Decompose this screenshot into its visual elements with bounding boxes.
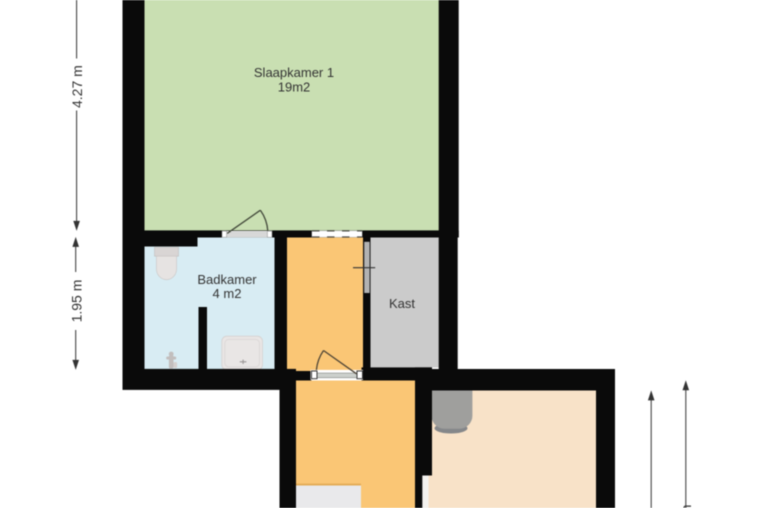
svg-text:1.95 m: 1.95 m <box>68 280 84 323</box>
svg-text:4.27 m: 4.27 m <box>69 65 85 108</box>
svg-text:Slaapkamer 1: Slaapkamer 1 <box>254 65 334 80</box>
svg-text:19m2: 19m2 <box>278 80 311 95</box>
svg-text:Badkamer: Badkamer <box>197 272 257 287</box>
svg-text:4 m2: 4 m2 <box>213 286 242 301</box>
svg-text:Kast: Kast <box>389 296 415 311</box>
svg-text:5.30 m: 5.30 m <box>678 505 694 508</box>
